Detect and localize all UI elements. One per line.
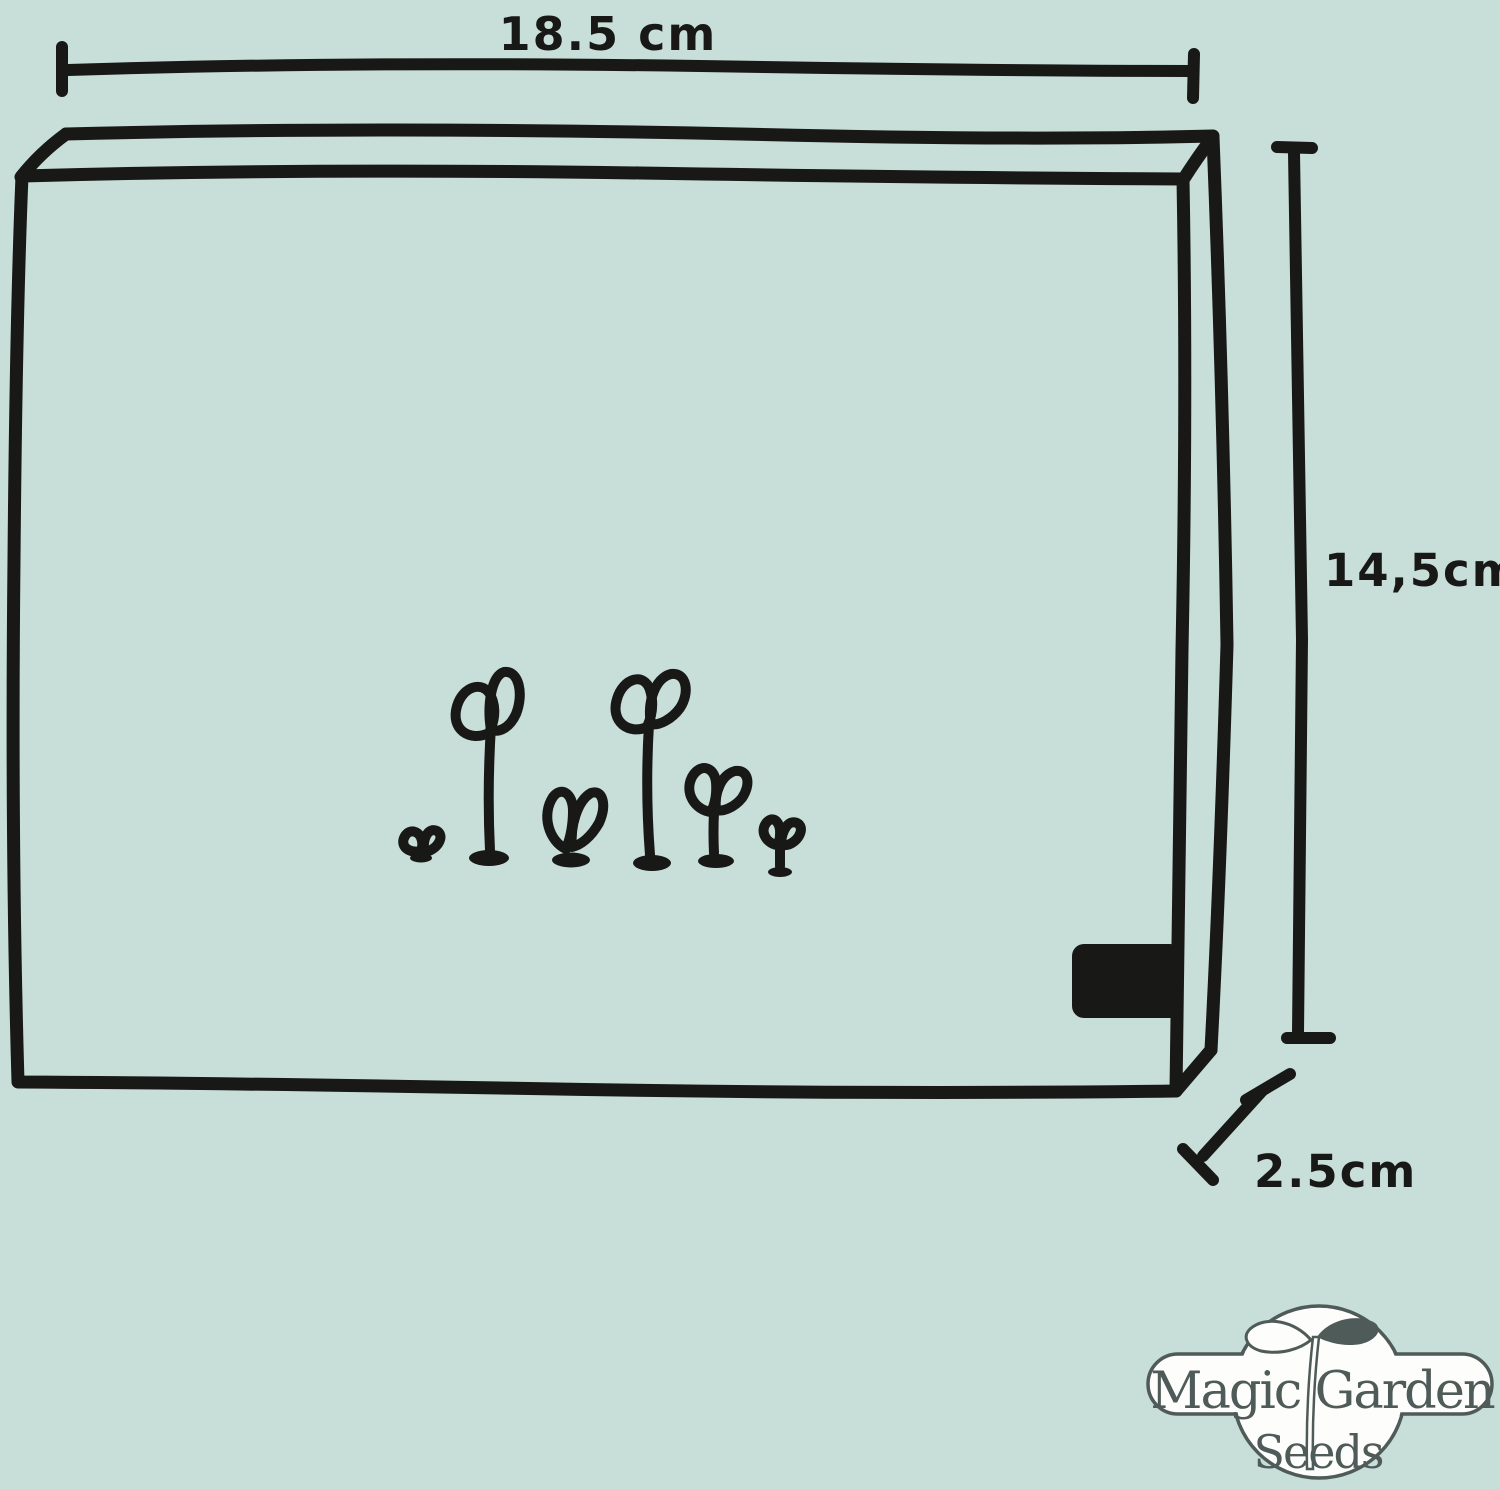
background xyxy=(0,0,1500,1489)
logo-text-line2: Seeds xyxy=(1253,1425,1382,1479)
seed-box-dimension-diagram: 18.5 cm 14,5cm 2.5cm Magic Garden Seeds xyxy=(0,0,1500,1489)
width-dimension-tick-right xyxy=(1193,54,1194,98)
sprout-stem xyxy=(647,724,650,855)
sprout-soil-mound xyxy=(552,853,590,868)
width-dimension-line xyxy=(68,64,1191,71)
sprout-soil-mound xyxy=(633,855,671,871)
sprout-stem xyxy=(489,726,491,851)
height-dimension-label: 14,5cm xyxy=(1324,544,1500,597)
width-dimension-label: 18.5 cm xyxy=(499,7,718,61)
logo-text-line1: Magic Garden xyxy=(1150,1362,1495,1421)
sprout-soil-mound xyxy=(698,854,734,868)
clasp-tab xyxy=(1072,944,1182,1018)
sprout-soil-mound xyxy=(469,850,509,866)
sprout-soil-mound xyxy=(410,854,432,863)
depth-dimension-label: 2.5cm xyxy=(1254,1145,1417,1198)
sprout-soil-mound xyxy=(768,867,792,877)
sprout-stem xyxy=(714,812,715,853)
